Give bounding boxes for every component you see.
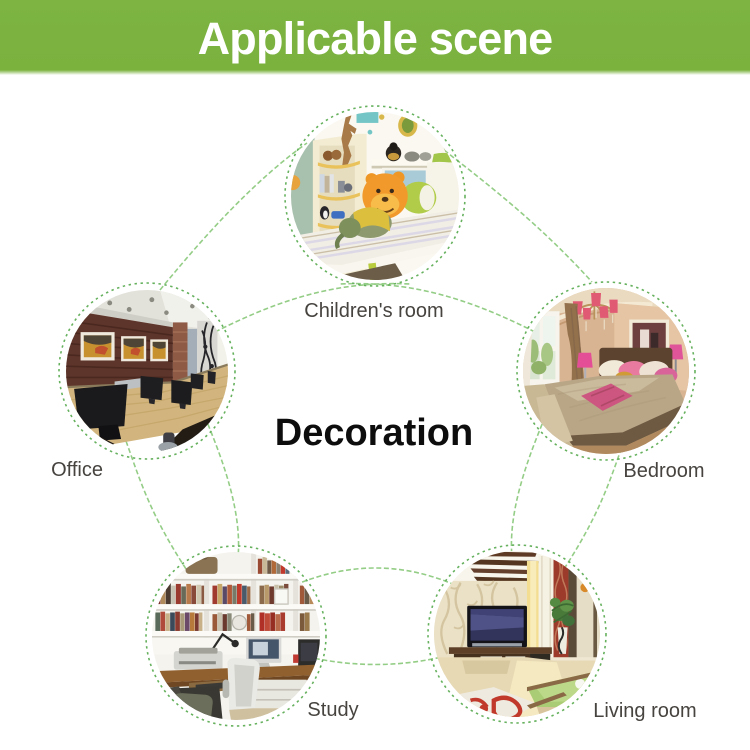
svg-text:Study: Study (307, 699, 358, 721)
svg-text:Office: Office (51, 459, 103, 481)
svg-text:Living room: Living room (593, 700, 696, 722)
svg-text:Decoration: Decoration (275, 412, 473, 454)
svg-text:Children's room: Children's room (304, 300, 443, 322)
svg-text:Bedroom: Bedroom (623, 460, 704, 482)
